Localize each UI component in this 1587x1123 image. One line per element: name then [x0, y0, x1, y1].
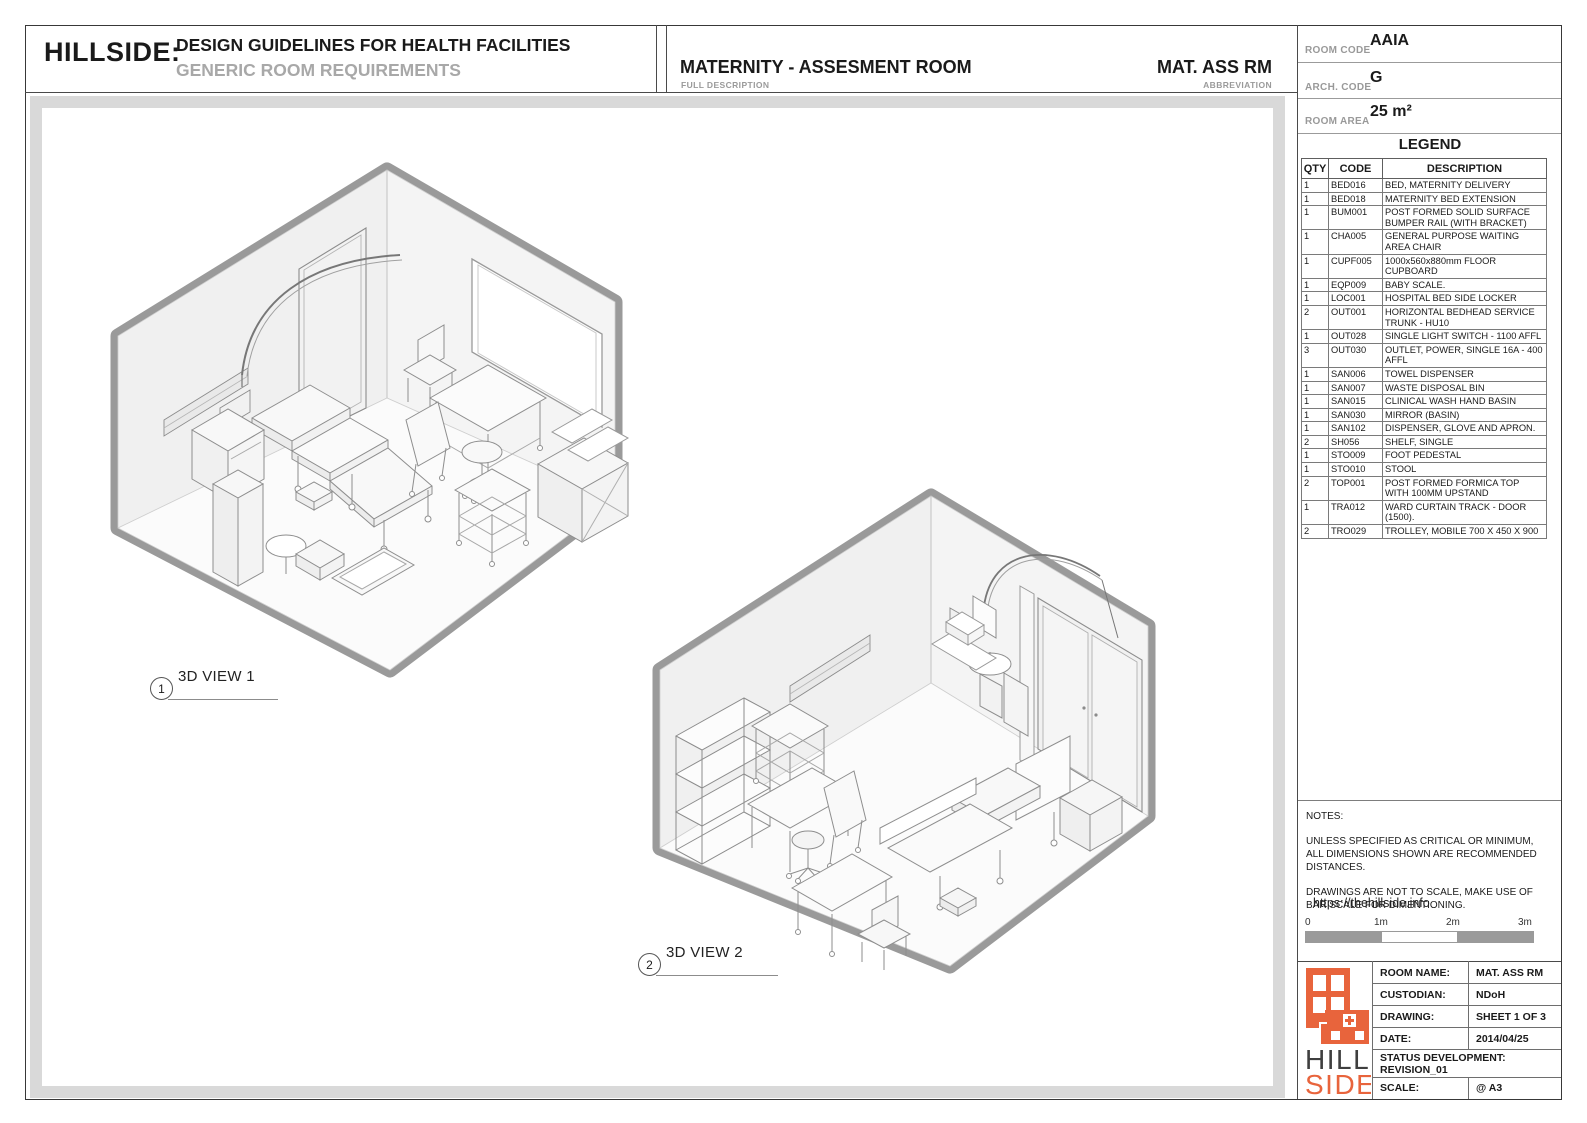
legend-cell-qty: 1 — [1302, 179, 1329, 193]
legend-row: 1 BED016 BED, MATERNITY DELIVERY — [1302, 179, 1547, 193]
legend-cell-code: STO009 — [1329, 449, 1383, 463]
legend-row: 1 SAN007 WASTE DISPOSAL BIN — [1302, 381, 1547, 395]
legend-cell-code: LOC001 — [1329, 292, 1383, 306]
header-bottom-border — [25, 92, 1297, 93]
legend-table-body: 1 BED016 BED, MATERNITY DELIVERY 1 BED01… — [1302, 179, 1547, 539]
legend-cell-description: HORIZONTAL BEDHEAD SERVICE TRUNK - HU10 — [1383, 305, 1547, 329]
legend-table-head: QTY CODE DESCRIPTION — [1302, 159, 1547, 179]
legend-cell-qty: 1 — [1302, 463, 1329, 477]
legend-row: 3 OUT030 OUTLET, POWER, SINGLE 16A - 400… — [1302, 343, 1547, 367]
revision-value: REVISION_01 — [1380, 1064, 1448, 1076]
legend-col-description: DESCRIPTION — [1383, 159, 1547, 179]
title-block-top-border — [1298, 961, 1561, 962]
legend-cell-qty: 1 — [1302, 330, 1329, 344]
scale-bar-segment-3 — [1457, 932, 1533, 942]
legend-cell-code: OUT001 — [1329, 305, 1383, 329]
legend-cell-qty: 3 — [1302, 343, 1329, 367]
legend-cell-qty: 1 — [1302, 230, 1329, 254]
scale-tick-3m: 3m — [1518, 917, 1532, 928]
room-code-label: ROOM CODE — [1305, 45, 1370, 56]
status-development-label: STATUS DEVELOPMENT: — [1380, 1052, 1506, 1064]
hillside-logo-mark — [1306, 968, 1369, 1044]
room-full-name-label: FULL DESCRIPTION — [681, 80, 769, 90]
room-abbreviation-label: ABBREVIATION — [1040, 80, 1272, 90]
legend-cell-description: 1000x560x880mm FLOOR CUPBOARD — [1383, 254, 1547, 278]
room-abbreviation: MAT. ASS RM — [1040, 57, 1272, 78]
legend-cell-description: WASTE DISPOSAL BIN — [1383, 381, 1547, 395]
legend-cell-code: SAN006 — [1329, 367, 1383, 381]
legend-cell-description: WARD CURTAIN TRACK - DOOR (1500). — [1383, 500, 1547, 524]
legend-cell-code: TOP001 — [1329, 476, 1383, 500]
scale-tick-2m: 2m — [1446, 917, 1460, 928]
legend-row: 1 SAN102 DISPENSER, GLOVE AND APRON. — [1302, 422, 1547, 436]
title-block-row-divider — [1372, 1027, 1561, 1028]
sheet-subtitle: GENERIC ROOM REQUIREMENTS — [176, 60, 461, 81]
scale-tick-1m: 1m — [1374, 917, 1388, 928]
legend-row: 1 TRA012 WARD CURTAIN TRACK - DOOR (1500… — [1302, 500, 1547, 524]
view2-partition-panel — [1020, 586, 1034, 768]
legend-row: 1 SAN030 MIRROR (BASIN) — [1302, 408, 1547, 422]
notes-title: NOTES: — [1306, 810, 1544, 823]
scale-bar-segment-1 — [1306, 932, 1382, 942]
legend-cell-description: MIRROR (BASIN) — [1383, 408, 1547, 422]
legend-cell-code: BED018 — [1329, 192, 1383, 206]
legend-row: 1 BED018 MATERNITY BED EXTENSION — [1302, 192, 1547, 206]
notes-paragraph-1: UNLESS SPECIFIED AS CRITICAL OR MINIMUM,… — [1306, 835, 1544, 874]
legend-cell-code: SAN007 — [1329, 381, 1383, 395]
legend-cell-qty: 1 — [1302, 254, 1329, 278]
legend-cell-description: OUTLET, POWER, SINGLE 16A - 400 AFFL — [1383, 343, 1547, 367]
view2-label-text: 3D VIEW 2 — [666, 944, 743, 961]
legend-col-qty: QTY — [1302, 159, 1329, 179]
sidebar-left-border — [1297, 25, 1298, 1099]
legend-cell-qty: 1 — [1302, 449, 1329, 463]
legend-cell-qty: 1 — [1302, 192, 1329, 206]
info-divider-3 — [1298, 133, 1561, 134]
legend-row: 1 SAN006 TOWEL DISPENSER — [1302, 367, 1547, 381]
legend-cell-description: TROLLEY, MOBILE 700 X 450 X 900 — [1383, 525, 1547, 539]
legend-cell-code: SAN102 — [1329, 422, 1383, 436]
title-block-value-divider-2 — [1468, 1077, 1469, 1099]
view2-number-bubble: 2 — [638, 953, 661, 976]
legend-cell-code: EQP009 — [1329, 278, 1383, 292]
title-block-row-divider — [1372, 1049, 1561, 1050]
header-divider-2 — [666, 25, 667, 92]
legend-cell-qty: 1 — [1302, 381, 1329, 395]
legend-cell-qty: 1 — [1302, 206, 1329, 230]
arch-code-label: ARCH. CODE — [1305, 82, 1371, 93]
legend-cell-description: SINGLE LIGHT SWITCH - 1100 AFFL — [1383, 330, 1547, 344]
legend-cell-code: OUT030 — [1329, 343, 1383, 367]
legend-cell-description: DISPENSER, GLOVE AND APRON. — [1383, 422, 1547, 436]
legend-cell-qty: 2 — [1302, 476, 1329, 500]
website-link[interactable]: https://thehillside.info — [1313, 896, 1430, 910]
legend-cell-description: POST FORMED FORMICA TOP WITH 100MM UPSTA… — [1383, 476, 1547, 500]
room-area-label: ROOM AREA — [1305, 116, 1370, 127]
legend-row: 1 BUM001 POST FORMED SOLID SURFACE BUMPE… — [1302, 206, 1547, 230]
legend-cell-qty: 1 — [1302, 292, 1329, 306]
legend-cell-description: BED, MATERNITY DELIVERY — [1383, 179, 1547, 193]
title-block-row-value: NDoH — [1476, 989, 1505, 1001]
title-block-row-value: MAT. ASS RM — [1476, 967, 1543, 979]
info-divider-2 — [1298, 98, 1561, 99]
legend-cell-description: MATERNITY BED EXTENSION — [1383, 192, 1547, 206]
legend-cell-code: OUT028 — [1329, 330, 1383, 344]
legend-row: 1 SAN015 CLINICAL WASH HAND BASIN — [1302, 395, 1547, 409]
legend-row: 2 SH056 SHELF, SINGLE — [1302, 435, 1547, 449]
room-area-value: 25 m² — [1370, 103, 1412, 121]
legend-cell-description: BABY SCALE. — [1383, 278, 1547, 292]
legend-cell-qty: 1 — [1302, 408, 1329, 422]
legend-cell-qty: 1 — [1302, 422, 1329, 436]
legend-col-code: CODE — [1329, 159, 1383, 179]
title-block-row-label: CUSTODIAN: — [1380, 989, 1446, 1001]
title-block-row-value: SHEET 1 OF 3 — [1476, 1011, 1546, 1023]
3d-view-1-drawing — [100, 150, 678, 710]
legend-row: 1 CHA005 GENERAL PURPOSE WAITING AREA CH… — [1302, 230, 1547, 254]
legend-cell-qty: 1 — [1302, 500, 1329, 524]
legend-cell-qty: 2 — [1302, 525, 1329, 539]
legend-cell-code: BED016 — [1329, 179, 1383, 193]
title-block-logo-divider — [1372, 961, 1373, 1099]
legend-cell-description: POST FORMED SOLID SURFACE BUMPER RAIL (W… — [1383, 206, 1547, 230]
drawing-sheet: HILLSIDE: DESIGN GUIDELINES FOR HEALTH F… — [0, 0, 1587, 1123]
legend-cell-code: STO010 — [1329, 463, 1383, 477]
legend-row: 2 TOP001 POST FORMED FORMICA TOP WITH 10… — [1302, 476, 1547, 500]
title-block-row-label: DRAWING: — [1380, 1011, 1434, 1023]
legend-cell-description: TOWEL DISPENSER — [1383, 367, 1547, 381]
legend-row: 1 STO009 FOOT PEDESTAL — [1302, 449, 1547, 463]
legend-cell-qty: 1 — [1302, 395, 1329, 409]
3d-view-2-drawing — [640, 468, 1220, 980]
info-divider-1 — [1298, 62, 1561, 63]
legend-row: 2 TRO029 TROLLEY, MOBILE 700 X 450 X 900 — [1302, 525, 1547, 539]
brand-title: HILLSIDE: — [44, 37, 181, 68]
scale-bar-segment-2 — [1382, 932, 1458, 942]
legend-row: 2 OUT001 HORIZONTAL BEDHEAD SERVICE TRUN… — [1302, 305, 1547, 329]
header-divider-1 — [656, 25, 657, 92]
legend-cell-description: STOOL — [1383, 463, 1547, 477]
hillside-logo: HILL SIDE — [1303, 966, 1371, 1097]
legend-row: 1 OUT028 SINGLE LIGHT SWITCH - 1100 AFFL — [1302, 330, 1547, 344]
legend-cell-qty: 1 — [1302, 367, 1329, 381]
title-block-row-divider — [1372, 1005, 1561, 1006]
legend-title: LEGEND — [1298, 136, 1562, 153]
notes-top-border — [1298, 800, 1561, 801]
legend-cell-code: TRA012 — [1329, 500, 1383, 524]
legend-cell-qty: 2 — [1302, 435, 1329, 449]
arch-code-value: G — [1370, 69, 1382, 87]
legend-cell-code: SH056 — [1329, 435, 1383, 449]
status-row-divider — [1372, 1077, 1561, 1078]
legend-row: 1 CUPF005 1000x560x880mm FLOOR CUPBOARD — [1302, 254, 1547, 278]
legend-cell-code: CUPF005 — [1329, 254, 1383, 278]
title-block-row-value: 2014/04/25 — [1476, 1033, 1529, 1045]
view1-number-bubble: 1 — [150, 677, 173, 700]
legend-row: 1 EQP009 BABY SCALE. — [1302, 278, 1547, 292]
legend-row: 1 STO010 STOOL — [1302, 463, 1547, 477]
legend-cell-qty: 2 — [1302, 305, 1329, 329]
scale-value: @ A3 — [1476, 1082, 1502, 1094]
room-code-value: AAIA — [1370, 32, 1409, 50]
legend-cell-description: SHELF, SINGLE — [1383, 435, 1547, 449]
scale-bar — [1305, 931, 1534, 943]
legend-cell-qty: 1 — [1302, 278, 1329, 292]
title-block-row-label: DATE: — [1380, 1033, 1411, 1045]
view2-label: 2 3D VIEW 2 — [638, 944, 778, 976]
legend-cell-code: BUM001 — [1329, 206, 1383, 230]
legend-cell-code: TRO029 — [1329, 525, 1383, 539]
logo-text-side: SIDE — [1305, 1069, 1371, 1097]
legend-row: 1 LOC001 HOSPITAL BED SIDE LOCKER — [1302, 292, 1547, 306]
scale-tick-0: 0 — [1305, 917, 1311, 928]
legend-cell-description: HOSPITAL BED SIDE LOCKER — [1383, 292, 1547, 306]
legend-cell-code: SAN030 — [1329, 408, 1383, 422]
view1-label-underline — [168, 699, 278, 700]
legend-table: QTY CODE DESCRIPTION 1 BED016 BED, MATER… — [1301, 158, 1547, 539]
view2-label-underline — [656, 975, 778, 976]
legend-cell-description: FOOT PEDESTAL — [1383, 449, 1547, 463]
view1-label-text: 3D VIEW 1 — [178, 668, 255, 685]
sheet-title: DESIGN GUIDELINES FOR HEALTH FACILITIES — [176, 35, 570, 56]
title-block-row-label: ROOM NAME: — [1380, 967, 1450, 979]
title-block-row-divider — [1372, 983, 1561, 984]
legend-cell-code: SAN015 — [1329, 395, 1383, 409]
view1-label: 1 3D VIEW 1 — [150, 668, 278, 700]
legend-cell-code: CHA005 — [1329, 230, 1383, 254]
scale-label: SCALE: — [1380, 1082, 1419, 1094]
room-full-name: MATERNITY - ASSESMENT ROOM — [680, 57, 972, 78]
legend-cell-description: CLINICAL WASH HAND BASIN — [1383, 395, 1547, 409]
legend-cell-description: GENERAL PURPOSE WAITING AREA CHAIR — [1383, 230, 1547, 254]
